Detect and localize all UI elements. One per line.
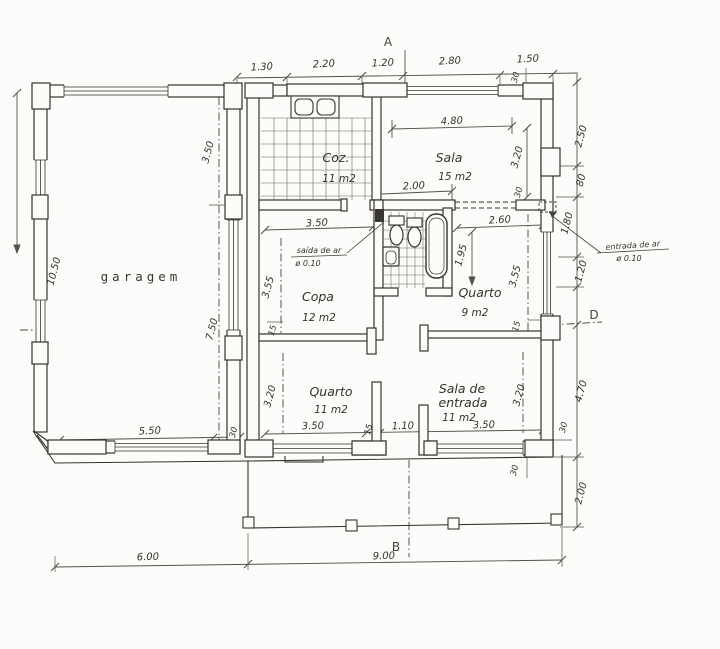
- room-label-quarto11: Quarto: [309, 384, 352, 399]
- terrace-post: [243, 517, 254, 528]
- room-label-copa: Copa: [302, 289, 334, 304]
- dim-garage-3: 5.50: [138, 425, 161, 437]
- room-area-sala: 15 m2: [438, 171, 472, 183]
- dim-copa-1: 3.50: [305, 217, 328, 229]
- saida-ar-vent: [375, 209, 384, 222]
- dim-right-6: 30: [558, 421, 570, 434]
- blueprint-page: A B D 1.30 2.20 1.20 2.80 1.50 30 2.50 8…: [0, 0, 720, 649]
- room-label-sala-entrada-2: entrada: [439, 395, 488, 410]
- dim-copa-2: 3.55: [260, 275, 276, 299]
- dim-right-5: 4.70: [573, 379, 589, 403]
- dim-top-1: 1.30: [250, 61, 273, 73]
- dim-sala-1: 4.80: [440, 115, 463, 127]
- dim-sala-3: 3.20: [509, 145, 525, 169]
- room-label-coz: Coz.: [323, 150, 350, 165]
- labels: A B D 1.30 2.20 1.20 2.80 1.50 30 2.50 8…: [46, 35, 662, 563]
- dim-quarto11-4: 1.10: [392, 421, 415, 433]
- dim-sala-2: 2.00: [402, 180, 425, 192]
- dim-garage-2: 7.50: [204, 317, 220, 341]
- dim-top-5: 1.50: [516, 53, 539, 65]
- terrace-post: [346, 520, 357, 531]
- floor-plan-drawing: A B D 1.30 2.20 1.20 2.80 1.50 30 2.50 8…: [0, 0, 720, 649]
- room-area-quarto11: 11 m2: [314, 404, 348, 416]
- dim-quarto11-1: 3.20: [262, 384, 278, 408]
- dim-quarto9-1: 2.60: [488, 214, 511, 226]
- dim-bottom-1: 6.00: [137, 552, 160, 564]
- dim-right-2: 80: [575, 173, 589, 188]
- terrace-post: [551, 514, 562, 525]
- kitchen-tile-grid: [261, 118, 372, 200]
- dim-top-2: 2.20: [312, 58, 335, 70]
- room-label-garagem: garagem: [101, 269, 182, 284]
- section-marker-d: D: [589, 308, 598, 322]
- room-label-sala-entrada: Sala de: [439, 381, 486, 396]
- bidet-icon: [408, 227, 421, 247]
- wall-coz-sala: [372, 96, 381, 200]
- house-windows: [270, 85, 553, 455]
- bathroom-fixtures: [383, 212, 447, 288]
- room-area-sala-entrada: 11 m2: [442, 412, 476, 424]
- section-marker-a: A: [384, 35, 393, 49]
- dim-left-1: 10.50: [46, 256, 64, 287]
- dim-sala-entrada-1: 3.50: [473, 420, 496, 432]
- dim-top-6: 30: [510, 71, 522, 84]
- toilet-icon: [390, 225, 403, 245]
- room-label-sala: Sala: [436, 150, 463, 165]
- dim-quarto9-3: 3.55: [507, 264, 523, 288]
- dim-sala-4: 30: [513, 186, 525, 199]
- dim-right-7: 2.00: [573, 481, 589, 505]
- dim-garage-1: 3.50: [200, 140, 216, 164]
- dim-right-4: 1.20: [573, 259, 589, 283]
- entrada-ar-diameter: ø 0.10: [615, 254, 641, 263]
- washbasin-icon: [383, 247, 399, 266]
- sink-basin-icon: [295, 99, 313, 115]
- dim-quarto11-2: 3.50: [302, 421, 325, 433]
- dim-top-3: 1.20: [371, 57, 394, 69]
- dim-bottom-2: 9.00: [373, 551, 396, 563]
- room-label-quarto9: Quarto: [458, 285, 501, 300]
- room-area-quarto9: 9 m2: [462, 307, 489, 319]
- dimension-linework: [13, 50, 584, 572]
- saida-ar-label: saída de ar: [297, 246, 342, 255]
- sink-basin-icon: [317, 99, 335, 115]
- dim-top-4: 2.80: [438, 55, 461, 67]
- terrace-post: [448, 518, 459, 529]
- room-area-copa: 12 m2: [302, 312, 336, 324]
- dim-right-1: 2.50: [573, 124, 589, 148]
- dim-wall-30: 30: [509, 464, 521, 477]
- dim-sala-entrada-2: 3.20: [511, 383, 527, 407]
- dim-quarto9-2: 1.95: [453, 243, 469, 267]
- saida-ar-diameter: ø 0.10: [294, 259, 320, 268]
- room-area-coz: 11 m2: [322, 173, 356, 185]
